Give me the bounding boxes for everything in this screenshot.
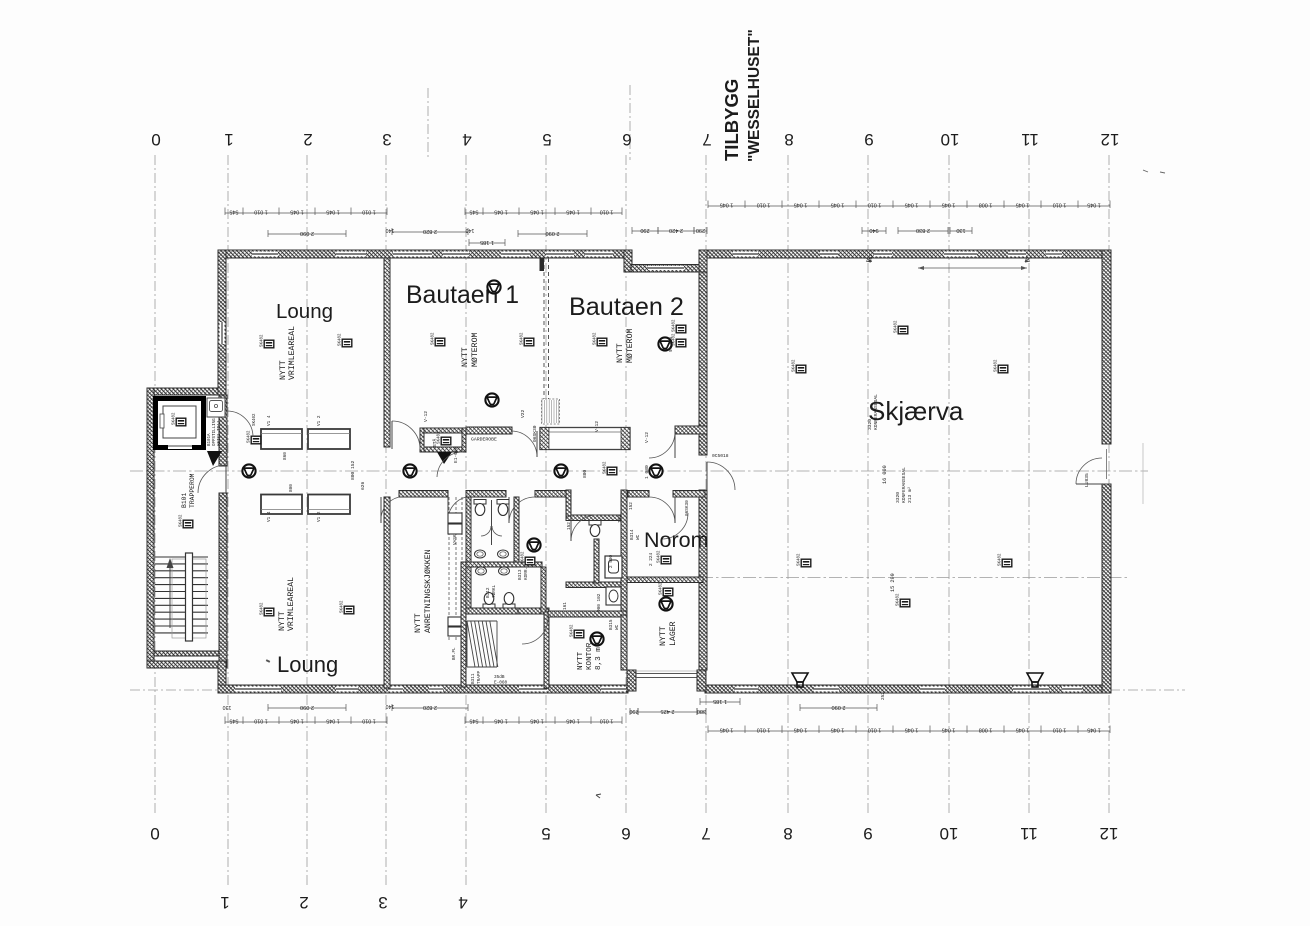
svg-text:800: 800 (582, 469, 588, 478)
svg-text:LAGER: LAGER (669, 621, 678, 646)
svg-text:KORR.: KORR. (524, 567, 529, 580)
svg-text:1 045: 1 045 (1087, 727, 1101, 733)
svg-text:1 010: 1 010 (1053, 727, 1067, 733)
svg-text:NYTT: NYTT (414, 613, 423, 633)
svg-text:MØTEROM: MØTEROM (625, 329, 635, 363)
svg-text:Loung: Loung (277, 652, 338, 677)
svg-text:1 010: 1 010 (600, 718, 614, 724)
svg-text:ANRETNINGSKJØKKEN: ANRETNINGSKJØKKEN (423, 549, 433, 633)
svg-text:1 045: 1 045 (566, 209, 580, 215)
svg-text:1 010: 1 010 (1053, 202, 1067, 208)
svg-text:NYTT: NYTT (278, 611, 287, 631)
svg-text:1 045: 1 045 (831, 727, 845, 733)
svg-text:B315: B315 (609, 619, 614, 630)
svg-text:7: 7 (701, 824, 710, 843)
svg-text:1 045: 1 045 (794, 727, 808, 733)
svg-text:1 045: 1 045 (1016, 727, 1030, 733)
svg-text:Loung: Loung (276, 300, 333, 323)
svg-text:3320: 3320 (867, 419, 873, 430)
svg-text:900 102: 900 102 (597, 593, 602, 612)
svg-text:2 820: 2 820 (423, 228, 437, 234)
svg-text:213 m²: 213 m² (907, 486, 913, 503)
svg-text:4: 4 (458, 893, 467, 912)
svg-text:1 045: 1 045 (1087, 202, 1101, 208)
svg-text:130: 130 (956, 227, 965, 233)
svg-text:800: 800 (289, 484, 294, 492)
svg-text:94,080: 94,080 (670, 336, 674, 352)
svg-text:290: 290 (629, 708, 638, 714)
svg-text:152: 152 (617, 514, 623, 523)
svg-text:152: 152 (629, 502, 634, 510)
svg-text:1 045: 1 045 (720, 202, 734, 208)
svg-text:252: 252 (869, 254, 874, 262)
svg-text:SK402: SK402 (341, 600, 345, 613)
svg-text:TILBYGG: TILBYGG (721, 79, 742, 161)
svg-text:6: 6 (622, 130, 631, 149)
svg-text:1 045: 1 045 (905, 727, 919, 733)
svg-text:SK402: SK402 (673, 319, 677, 332)
svg-text:SK402: SK402 (798, 553, 802, 566)
svg-text:SK402: SK402 (432, 332, 436, 345)
svg-text:SK402: SK402 (180, 514, 184, 527)
svg-text:E1-060: E1-060 (453, 446, 459, 463)
svg-text:0: 0 (150, 824, 159, 843)
svg-text:VRIMLEAREAL: VRIMLEAREAL (287, 577, 296, 631)
svg-text:SK402: SK402 (995, 359, 999, 372)
svg-text:SK402: SK402 (571, 624, 575, 637)
svg-text:161: 161 (563, 602, 568, 610)
svg-text:1 080: 1 080 (644, 465, 650, 479)
svg-text:B312: B312 (486, 587, 491, 598)
svg-text:VASK: VASK (453, 534, 458, 545)
svg-text:1 045: 1 045 (326, 209, 340, 215)
svg-text:TRAPPEROM: TRAPPEROM (189, 473, 196, 508)
svg-text:SK402: SK402 (594, 332, 598, 345)
svg-text:V1 4: V1 4 (267, 511, 272, 522)
svg-text:SK402: SK402 (660, 582, 664, 595)
svg-text:B311: B311 (471, 673, 476, 684)
svg-text:2: 2 (299, 893, 308, 912)
svg-text:SK402: SK402 (604, 461, 608, 474)
svg-text:1 010: 1 010 (757, 202, 771, 208)
svg-text:1 045: 1 045 (494, 209, 508, 215)
svg-text:SK402: SK402 (895, 320, 899, 333)
svg-text:545: 545 (470, 209, 479, 215)
svg-text:GARDEROBE: GARDEROBE (471, 437, 497, 443)
svg-text:B101A: B101A (208, 433, 212, 446)
svg-text:SK402: SK402 (173, 412, 177, 425)
svg-text:SK402: SK402 (658, 550, 662, 563)
svg-text:16 000: 16 000 (882, 465, 888, 484)
svg-text:3320: 3320 (895, 492, 901, 503)
svg-text:2 830: 2 830 (916, 227, 930, 233)
svg-text:OPPSTILLING: OPPSTILLING (213, 418, 217, 446)
svg-text:4: 4 (462, 130, 471, 149)
svg-text:2 090: 2 090 (546, 230, 560, 236)
svg-text:2 224: 2 224 (649, 552, 654, 566)
svg-text:1 045: 1 045 (494, 718, 508, 724)
svg-text:6: 6 (621, 824, 630, 843)
svg-text:STÅ: STÅ (431, 438, 438, 447)
svg-text:B314: B314 (630, 529, 635, 540)
svg-text:860: 860 (283, 452, 288, 460)
svg-text:380: 380 (697, 708, 706, 714)
svg-text:1 008: 1 008 (979, 727, 993, 733)
svg-text:140: 140 (386, 703, 395, 709)
svg-text:0: 0 (151, 130, 160, 149)
svg-text:V1 2: V1 2 (317, 511, 322, 522)
svg-text:2 420: 2 420 (669, 227, 683, 233)
svg-text:SK402: SK402 (522, 551, 526, 564)
svg-text:1 010: 1 010 (600, 209, 614, 215)
svg-text:2 425: 2 425 (661, 708, 675, 714)
svg-text:1 045: 1 045 (290, 718, 304, 724)
svg-text:9: 9 (864, 130, 873, 149)
svg-text:SK402: SK402 (521, 332, 525, 345)
svg-text:1 045: 1 045 (326, 718, 340, 724)
svg-text:1 045: 1 045 (942, 202, 956, 208)
svg-text:B313: B313 (518, 569, 523, 580)
svg-text:8,3 m²: 8,3 m² (594, 643, 603, 670)
svg-text:0C5018: 0C5018 (712, 453, 729, 459)
svg-text:35dB: 35dB (494, 675, 505, 680)
svg-text:8: 8 (783, 824, 792, 843)
svg-text:152: 152 (567, 522, 572, 530)
svg-text:12: 12 (1101, 130, 1120, 149)
svg-text:1 185: 1 185 (480, 239, 494, 245)
svg-text:12: 12 (1100, 824, 1119, 843)
svg-text:1 045: 1 045 (1016, 202, 1030, 208)
svg-text:KONTOR: KONTOR (586, 642, 594, 670)
svg-text:2 090: 2 090 (832, 704, 846, 710)
svg-text:1 010: 1 010 (757, 727, 771, 733)
svg-text:800 152: 800 152 (350, 460, 356, 480)
svg-text:E-060: E-060 (494, 681, 508, 686)
svg-text:1 010: 1 010 (868, 727, 882, 733)
svg-text:545: 545 (230, 209, 239, 215)
svg-text:290: 290 (640, 227, 649, 233)
svg-text:BR.PL: BR.PL (453, 647, 457, 660)
svg-text:SK402: SK402 (261, 602, 265, 615)
svg-text:KONFERANSESAL: KONFERANSESAL (873, 394, 879, 430)
svg-text:1 185: 1 185 (713, 698, 727, 704)
svg-text:SK402: SK402 (261, 334, 265, 347)
svg-text:1 045: 1 045 (530, 209, 544, 215)
svg-text:1 010: 1 010 (868, 202, 882, 208)
svg-text:940: 940 (869, 227, 878, 233)
svg-text:1 010: 1 010 (362, 718, 376, 724)
svg-text:SK402: SK402 (897, 593, 901, 606)
svg-text:3: 3 (378, 893, 387, 912)
svg-text:SK402: SK402 (253, 413, 257, 426)
svg-text:V-12: V-12 (594, 421, 600, 432)
svg-text:NYTT: NYTT (659, 626, 668, 646)
svg-text:V22: V22 (520, 409, 526, 418)
svg-text:5: 5 (542, 130, 551, 149)
svg-text:5: 5 (541, 824, 550, 843)
svg-text:545: 545 (470, 718, 479, 724)
svg-text:10: 10 (941, 130, 960, 149)
svg-text:SK402: SK402 (999, 553, 1003, 566)
svg-text:SK402: SK402 (793, 359, 797, 372)
svg-text:2 500: 2 500 (609, 554, 614, 568)
svg-text:1 045: 1 045 (530, 718, 544, 724)
svg-text:WC: WC (636, 534, 641, 540)
svg-text:Bautaen 2: Bautaen 2 (569, 293, 684, 321)
svg-text:1 045: 1 045 (831, 202, 845, 208)
svg-text:SK402: SK402 (438, 431, 442, 444)
svg-text:1: 1 (220, 893, 229, 912)
svg-text:NYTT: NYTT (577, 651, 585, 670)
svg-text:HEIS1,TRAJ.: HEIS1,TRAJ. (218, 418, 222, 446)
svg-text:2 820: 2 820 (423, 704, 437, 710)
svg-text:7: 7 (702, 130, 711, 149)
svg-text:NYTT: NYTT (461, 347, 470, 367)
svg-text:Norom: Norom (644, 528, 709, 552)
svg-text:140: 140 (466, 227, 475, 233)
svg-text:252: 252 (881, 692, 886, 700)
svg-text:1 010: 1 010 (254, 209, 268, 215)
svg-text:3: 3 (382, 130, 391, 149)
svg-text:1 045: 1 045 (905, 202, 919, 208)
svg-text:V1 2: V1 2 (317, 415, 322, 426)
svg-text:Bautaen 1: Bautaen 1 (406, 282, 519, 309)
svg-text:1 008: 1 008 (979, 202, 993, 208)
svg-text:V-12: V-12 (644, 432, 650, 443)
svg-text:06SK30: 06SK30 (685, 500, 690, 516)
svg-text:NYTT: NYTT (616, 343, 625, 363)
svg-text:VRIMLEAREAL: VRIMLEAREAL (288, 326, 297, 380)
svg-text:SK402: SK402 (339, 333, 343, 346)
svg-text:TRAPP: TRAPP (477, 670, 482, 684)
svg-text:1 045: 1 045 (794, 202, 808, 208)
svg-text:10: 10 (940, 824, 959, 843)
svg-text:06SK30: 06SK30 (532, 425, 538, 442)
svg-text:2: 2 (303, 130, 312, 149)
svg-text:WC: WC (615, 624, 620, 630)
svg-text:2 090: 2 090 (300, 230, 314, 236)
svg-text:KONFERANSESAL: KONFERANSESAL (901, 467, 907, 503)
svg-text:1 045: 1 045 (720, 727, 734, 733)
svg-text:1 045: 1 045 (566, 718, 580, 724)
svg-text:B101: B101 (181, 492, 188, 508)
svg-text:1: 1 (224, 130, 233, 149)
svg-text:11: 11 (1020, 824, 1038, 843)
svg-text:TØRKL: TØRKL (492, 584, 497, 598)
svg-text:LU835: LU835 (1084, 473, 1090, 487)
svg-text:1 010: 1 010 (254, 718, 268, 724)
svg-text:V-12: V-12 (423, 411, 429, 422)
svg-text:11: 11 (1021, 130, 1039, 149)
svg-text:SK402: SK402 (248, 430, 252, 443)
svg-text:"WESSELHUSET": "WESSELHUSET" (746, 29, 763, 162)
svg-text:8: 8 (784, 130, 793, 149)
svg-text:2 090: 2 090 (300, 704, 314, 710)
svg-text:MØTEROM: MØTEROM (470, 333, 480, 367)
svg-text:1 045: 1 045 (290, 209, 304, 215)
svg-text:545: 545 (230, 718, 239, 724)
svg-text:9: 9 (863, 824, 872, 843)
svg-text:626: 626 (360, 481, 366, 490)
svg-text:1 010: 1 010 (362, 209, 376, 215)
svg-text:1 045: 1 045 (942, 727, 956, 733)
svg-text:15 299: 15 299 (890, 573, 896, 592)
svg-text:Skjærva: Skjærva (868, 396, 964, 426)
svg-text:130: 130 (223, 704, 232, 710)
svg-text:290: 290 (696, 227, 705, 233)
svg-text:V1 4: V1 4 (267, 415, 272, 426)
svg-text:140: 140 (386, 227, 395, 233)
svg-text:NYTT: NYTT (279, 360, 288, 380)
